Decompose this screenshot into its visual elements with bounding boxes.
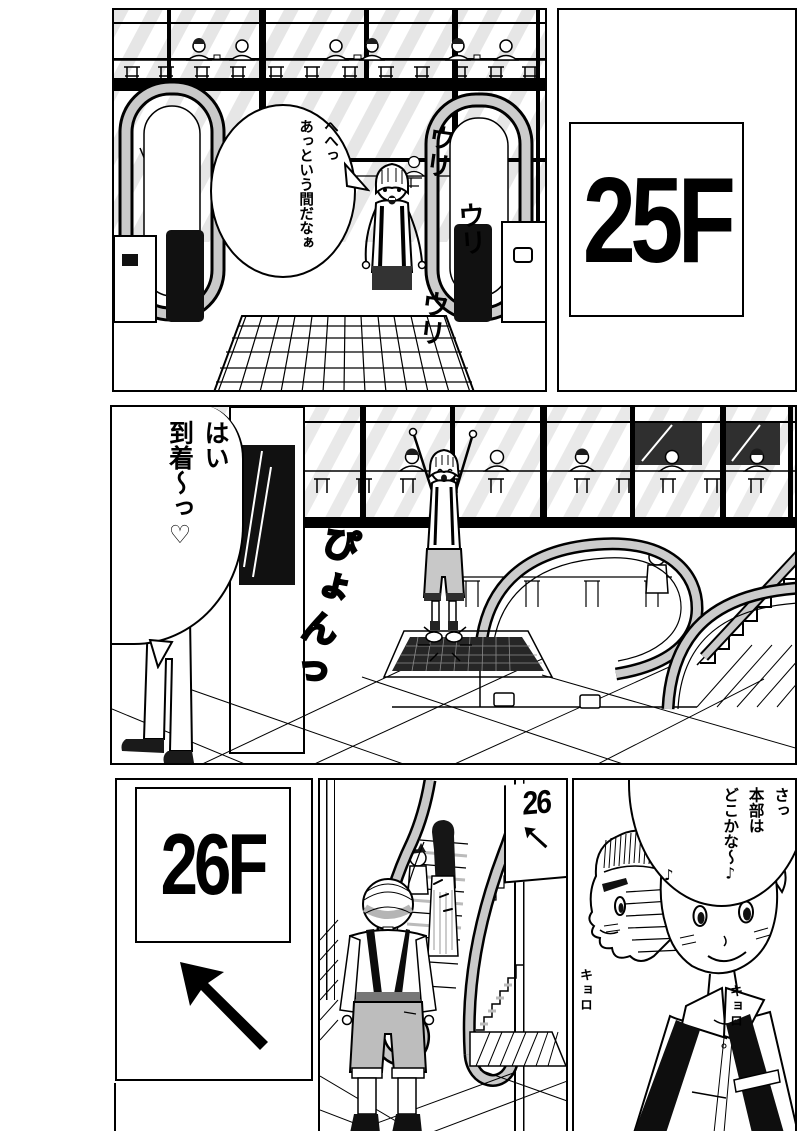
panel-escalator-26: 26 <box>318 778 568 1131</box>
up-left-arrow-icon <box>159 956 289 1056</box>
panel-bleed-line <box>114 1083 116 1131</box>
bubble-tail <box>148 639 174 669</box>
speech-line: 到着〜っ♡ <box>165 420 195 643</box>
speech-bubble-arrival: はい 到着〜っ♡ <box>110 405 244 645</box>
speech-line: あっという間だなぁ <box>295 119 314 272</box>
speech-line: へへっ <box>320 119 339 272</box>
speech-line: さっ <box>771 787 790 905</box>
panel-floor-sign-26f: 26F <box>115 778 313 1081</box>
floor-sign-text: 26F <box>161 822 265 908</box>
floor-sign-26f: 26F <box>135 787 291 943</box>
up-left-arrow-icon <box>523 823 549 851</box>
manga-page: へへっ あっという間だなぁ ウリ ウリ ウリ 25F <box>0 0 800 1131</box>
wall-sign-26: 26 <box>504 780 566 883</box>
side-stairs <box>697 555 797 707</box>
foreground-boy-back <box>340 879 436 1131</box>
bubble-tail <box>344 160 370 194</box>
sfx-escalator-hum-3: ウリ <box>409 288 456 348</box>
speech-line: 本部は <box>745 787 764 905</box>
sfx-escalator-hum-2: ウリ <box>448 201 491 258</box>
speech-line: はい <box>201 420 231 643</box>
wall-sign-text: 26 <box>522 784 550 819</box>
body <box>634 970 797 1131</box>
speech-bubble-quick-ride: へへっ あっという間だなぁ <box>210 104 356 278</box>
panel-arrival: はい 到着〜っ♡ ぴょんっ <box>110 405 797 765</box>
sfx-look-around-left: キョロ <box>575 968 594 1013</box>
sfx-music-note: ♪ <box>664 866 674 884</box>
sfx-escalator-hum-1: ウリ <box>414 122 460 181</box>
speech-line: どこかな〜♪ <box>720 787 739 905</box>
speech-bubble-headquarters: さっ 本部は どこかな〜♪ <box>628 778 797 907</box>
panel-escalator-top: へへっ あっという間だなぁ ウリ ウリ ウリ <box>112 8 547 392</box>
sfx-look-around-right: キョロ <box>725 984 744 1029</box>
floor-sign-25f: 25F <box>569 122 744 317</box>
floor-grate <box>470 1032 566 1066</box>
lower-tables <box>442 577 672 607</box>
panel-floor-sign-25f: 25F <box>557 8 797 392</box>
floor-sign-text: 25F <box>583 159 731 281</box>
left-shelf-hatch <box>320 920 338 1040</box>
floor-tiles <box>112 659 797 765</box>
panel-looking-around: さっ 本部は どこかな〜♪ ♪ キョロ キョロ <box>572 778 797 1131</box>
landing-mat <box>384 631 552 677</box>
